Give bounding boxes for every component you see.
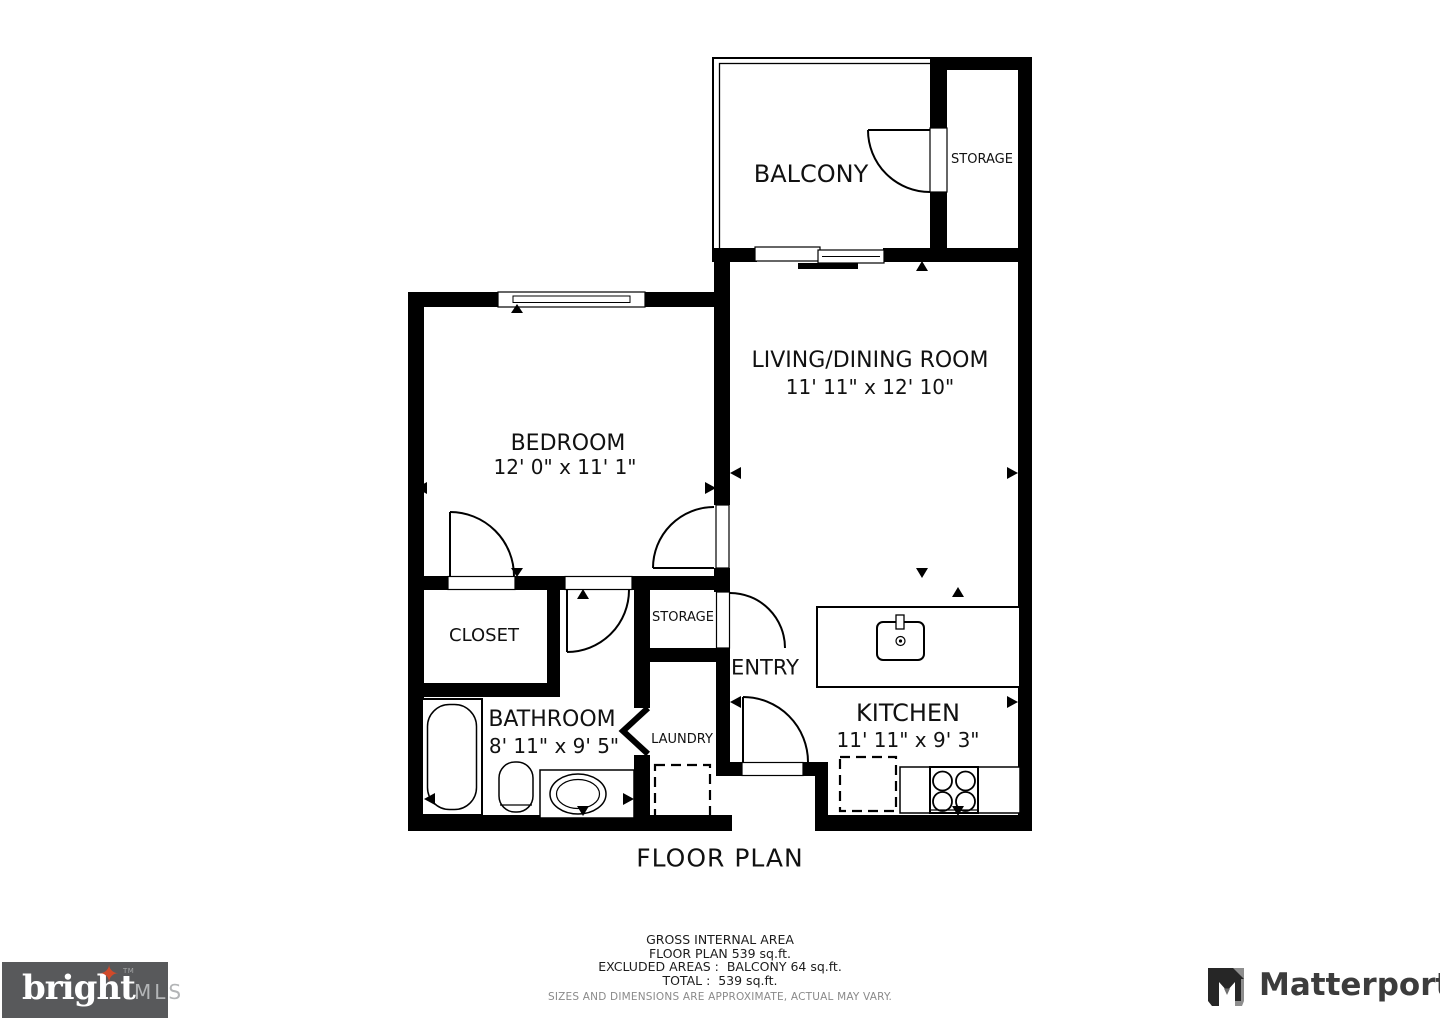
bathroom-dims: 8' 11" x 9' 5" [489,735,619,757]
living-dining-dims: 11' 11" x 12' 10" [786,376,954,398]
vanity-sink [540,770,634,818]
star-icon: ✦ [99,960,119,988]
balcony-storage-door [868,130,930,192]
floor-plan-page: BALCONY STORAGE LIVING/DINING ROOM 11' 1… [0,0,1440,1018]
entry-label: ENTRY [731,656,799,679]
living-dining-label: LIVING/DINING ROOM [752,349,989,373]
laundry-label: LAUNDRY [651,733,713,747]
bedroom-label: BEDROOM [511,432,626,456]
dishwasher [840,757,896,811]
kitchen-label: KITCHEN [856,700,960,726]
closet-door [450,512,514,576]
washer-dryer [655,765,710,817]
bedroom-living-door [653,507,714,568]
floor-plan-area-line: FLOOR PLAN 539 sq.ft. [0,947,1440,961]
page-title: FLOOR PLAN [636,844,803,872]
bright-mls-logo: bright ✦ TM MLS [2,962,168,1018]
kitchen-dims: 11' 11" x 9' 3" [836,729,979,751]
matterport-m-icon [1206,963,1246,1007]
kitchen-island-counter [817,607,1020,687]
hall-storage-door [730,593,785,648]
bathroom-label: BATHROOM [488,708,615,732]
bedroom-window [498,292,645,307]
storage-hall-label: STORAGE [652,611,714,625]
entry-front-door [743,697,808,762]
bedroom-dims: 12' 0" x 11' 1" [493,456,636,478]
mls-label: MLS [134,980,184,1004]
balcony-label: BALCONY [754,161,869,187]
gross-internal-area-line: GROSS INTERNAL AREA [0,933,1440,947]
balcony-sliding-door [755,247,884,263]
bathroom-door [567,590,629,652]
toilet [499,762,533,812]
trademark-label: TM [123,967,134,975]
matterport-wordmark: Matterport [1259,967,1440,1003]
closet-label: CLOSET [449,626,519,646]
matterport-logo: Matterport [1206,963,1440,1007]
storage-upper-label: STORAGE [951,153,1013,167]
